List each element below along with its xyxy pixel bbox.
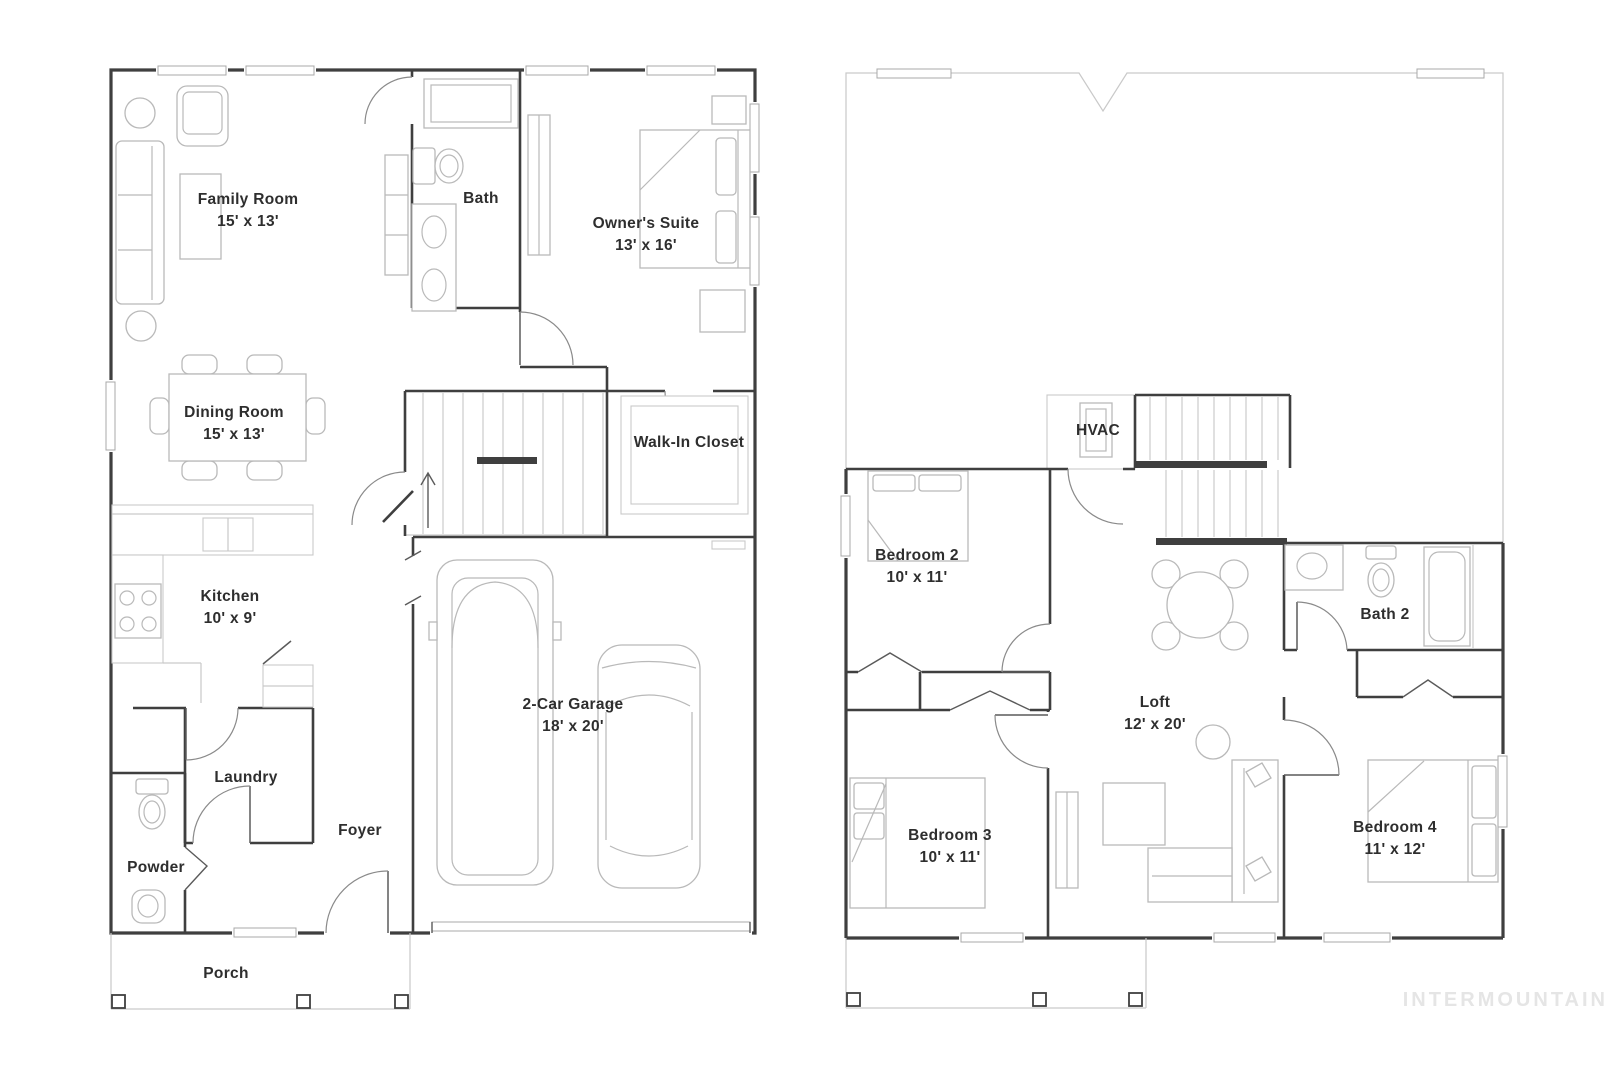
armoire-icon bbox=[528, 115, 550, 255]
room-label-loft: Loft bbox=[1140, 694, 1170, 711]
car-icon bbox=[598, 645, 700, 888]
side-table-icon bbox=[126, 311, 156, 341]
room-label-bedroom2: Bedroom 2 bbox=[875, 547, 959, 564]
toilet-icon bbox=[136, 779, 168, 829]
room-dims-bedroom3: 10' x 11' bbox=[920, 849, 981, 866]
room-label-garage: 2-Car Garage bbox=[523, 696, 624, 713]
bath2-toilet-icon bbox=[1366, 546, 1396, 597]
bath-vanity-icon bbox=[412, 204, 456, 311]
room-label-owners-suite: Owner's Suite bbox=[593, 215, 700, 232]
floorplan-image: Family Room 15' x 13' Bath Owner's Suite… bbox=[0, 0, 1620, 1080]
ottoman-icon bbox=[1196, 725, 1230, 759]
room-dims-garage: 18' x 20' bbox=[542, 718, 604, 735]
porch-first-floor bbox=[111, 933, 410, 1009]
dresser-icon bbox=[700, 290, 745, 332]
sofa-icon bbox=[116, 141, 164, 304]
room-label-bedroom3: Bedroom 3 bbox=[908, 827, 992, 844]
room-label-bath: Bath bbox=[463, 190, 499, 207]
room-dims-dining-room: 15' x 13' bbox=[203, 426, 265, 443]
sectional-sofa-icon bbox=[1148, 760, 1278, 902]
room-dims-bedroom2: 10' x 11' bbox=[887, 569, 948, 586]
room-label-foyer: Foyer bbox=[338, 822, 382, 839]
garage-door bbox=[430, 922, 752, 938]
console-icon bbox=[1056, 792, 1078, 888]
bookshelf-icon bbox=[385, 155, 408, 275]
second-floor-plan: HVAC Bedroom 2 10' x 11' Bath 2 Loft 12'… bbox=[839, 69, 1508, 1008]
garage-shelf-icon bbox=[712, 541, 745, 549]
bath2-sink-icon bbox=[1285, 545, 1343, 590]
room-label-powder: Powder bbox=[127, 859, 185, 876]
room-dims-kitchen: 10' x 9' bbox=[204, 610, 257, 627]
staircase-second-floor bbox=[1133, 397, 1287, 545]
room-label-walkin-closet: Walk-In Closet bbox=[634, 434, 744, 451]
porch-second-floor bbox=[846, 938, 1146, 1008]
room-label-laundry: Laundry bbox=[214, 769, 277, 786]
floorplan-page: Family Room 15' x 13' Bath Owner's Suite… bbox=[0, 0, 1620, 1080]
stove-icon bbox=[115, 584, 161, 638]
room-label-bedroom4: Bedroom 4 bbox=[1353, 819, 1437, 836]
loft-table-icon bbox=[1152, 560, 1248, 650]
rug-icon bbox=[1103, 783, 1165, 845]
room-dims-owners-suite: 13' x 16' bbox=[615, 237, 677, 254]
watermark: INTERMOUNTAIN bbox=[1403, 989, 1608, 1011]
side-table-icon bbox=[125, 98, 155, 128]
bath-toilet-icon bbox=[413, 148, 463, 184]
walkin-shelves-icon bbox=[621, 396, 748, 514]
room-label-kitchen: Kitchen bbox=[201, 588, 260, 605]
room-label-porch: Porch bbox=[203, 965, 248, 982]
room-dims-bedroom4: 11' x 12' bbox=[1365, 841, 1426, 858]
room-label-bath2: Bath 2 bbox=[1360, 606, 1409, 623]
room-dims-loft: 12' x 20' bbox=[1124, 716, 1186, 733]
armchair-icon bbox=[177, 86, 228, 146]
bathtub-icon bbox=[1424, 547, 1470, 646]
shower-icon bbox=[424, 79, 518, 128]
coffee-table-icon bbox=[180, 174, 221, 259]
first-floor-plan: Family Room 15' x 13' Bath Owner's Suite… bbox=[104, 64, 760, 1009]
powder-sink-icon bbox=[132, 890, 165, 923]
staircase-first-floor bbox=[406, 393, 606, 535]
room-label-dining-room: Dining Room bbox=[184, 404, 284, 421]
room-label-hvac: HVAC bbox=[1076, 422, 1120, 439]
pantry-icon bbox=[263, 665, 313, 707]
nightstand-icon bbox=[712, 96, 746, 124]
room-label-family-room: Family Room bbox=[198, 191, 299, 208]
room-dims-family-room: 15' x 13' bbox=[217, 213, 279, 230]
